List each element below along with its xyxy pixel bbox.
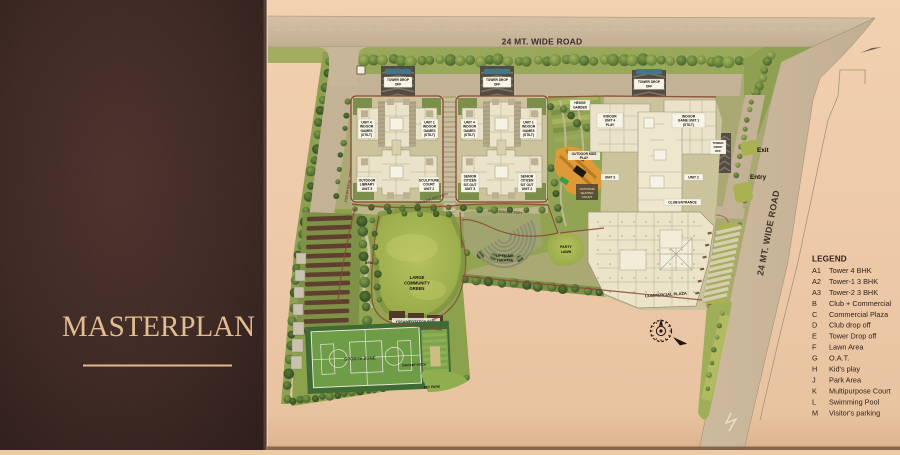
svg-text:K: K [812, 386, 817, 395]
svg-text:UNIT 3: UNIT 3 [465, 187, 476, 191]
svg-text:E: E [812, 332, 817, 341]
svg-text:Swimming Pool: Swimming Pool [829, 397, 880, 406]
svg-text:Kid's play: Kid's play [829, 365, 860, 374]
svg-text:Exit: Exit [757, 147, 769, 154]
svg-text:OFF: OFF [395, 82, 401, 86]
svg-text:M: M [812, 408, 818, 417]
svg-text:THEATRE: THEATRE [497, 259, 514, 263]
svg-text:J: J [812, 376, 816, 385]
svg-text:Club + Commercial: Club + Commercial [829, 299, 892, 308]
svg-text:Commercial Plaza: Commercial Plaza [829, 310, 889, 319]
svg-text:LEGEND: LEGEND [812, 255, 847, 264]
svg-text:O.A.T.: O.A.T. [829, 354, 849, 363]
svg-text:(STILT): (STILT) [464, 133, 475, 137]
svg-text:(STILT): (STILT) [361, 133, 372, 137]
svg-text:Tower-2 3 BHK: Tower-2 3 BHK [829, 288, 878, 297]
svg-text:Tower-1 3 BHK: Tower-1 3 BHK [829, 277, 878, 286]
svg-text:24 MT. WIDE ROAD: 24 MT. WIDE ROAD [502, 37, 583, 47]
svg-text:Tower Drop off: Tower Drop off [829, 332, 877, 341]
svg-text:LAWN: LAWN [561, 250, 572, 254]
svg-text:COMMUNITY: COMMUNITY [404, 281, 430, 286]
svg-text:C: C [812, 310, 817, 319]
svg-text:B: B [812, 299, 817, 308]
svg-text:OPEN AIR: OPEN AIR [496, 254, 514, 258]
svg-text:Lawn Area: Lawn Area [829, 343, 864, 352]
svg-text:Club drop off: Club drop off [829, 321, 872, 330]
svg-text:LARGE: LARGE [410, 275, 425, 280]
svg-text:A1: A1 [812, 266, 821, 275]
svg-text:A3: A3 [812, 288, 821, 297]
svg-text:UNIT 2: UNIT 2 [424, 187, 435, 191]
svg-text:COURT: COURT [582, 195, 593, 199]
svg-text:(STILT): (STILT) [683, 123, 694, 127]
svg-text:GREEN: GREEN [410, 286, 425, 291]
svg-text:OFF: OFF [715, 149, 721, 153]
svg-text:Tower 4 BHK: Tower 4 BHK [829, 266, 872, 275]
svg-text:UNIT 3: UNIT 3 [605, 175, 616, 179]
svg-text:(STILT): (STILT) [424, 133, 435, 137]
svg-text:PARTY: PARTY [560, 245, 573, 249]
svg-text:Multipurpose Court: Multipurpose Court [829, 386, 891, 395]
svg-text:G: G [812, 354, 818, 363]
svg-text:UNIT 3: UNIT 3 [362, 187, 373, 191]
svg-text:L: L [812, 397, 816, 406]
svg-text:CLUB ENTRANCE: CLUB ENTRANCE [668, 200, 697, 204]
svg-text:PLAY: PLAY [606, 123, 615, 127]
svg-text:MASTERPLAN: MASTERPLAN [62, 310, 255, 343]
svg-text:A2: A2 [812, 277, 821, 286]
svg-text:Visitor's parking: Visitor's parking [829, 408, 880, 417]
svg-text:Entry: Entry [750, 174, 767, 181]
svg-text:H: H [812, 365, 817, 374]
svg-text:OFF: OFF [494, 82, 500, 86]
svg-text:UNIT 2: UNIT 2 [522, 187, 533, 191]
svg-text:GARDEN: GARDEN [573, 105, 588, 109]
svg-text:PLAY: PLAY [580, 156, 589, 160]
svg-text:F: F [812, 343, 817, 352]
svg-text:Park Area: Park Area [829, 376, 862, 385]
svg-text:UNIT 2: UNIT 2 [688, 175, 699, 179]
svg-text:OFF: OFF [646, 84, 652, 88]
svg-text:(STILT): (STILT) [523, 133, 534, 137]
svg-text:D: D [812, 321, 817, 330]
